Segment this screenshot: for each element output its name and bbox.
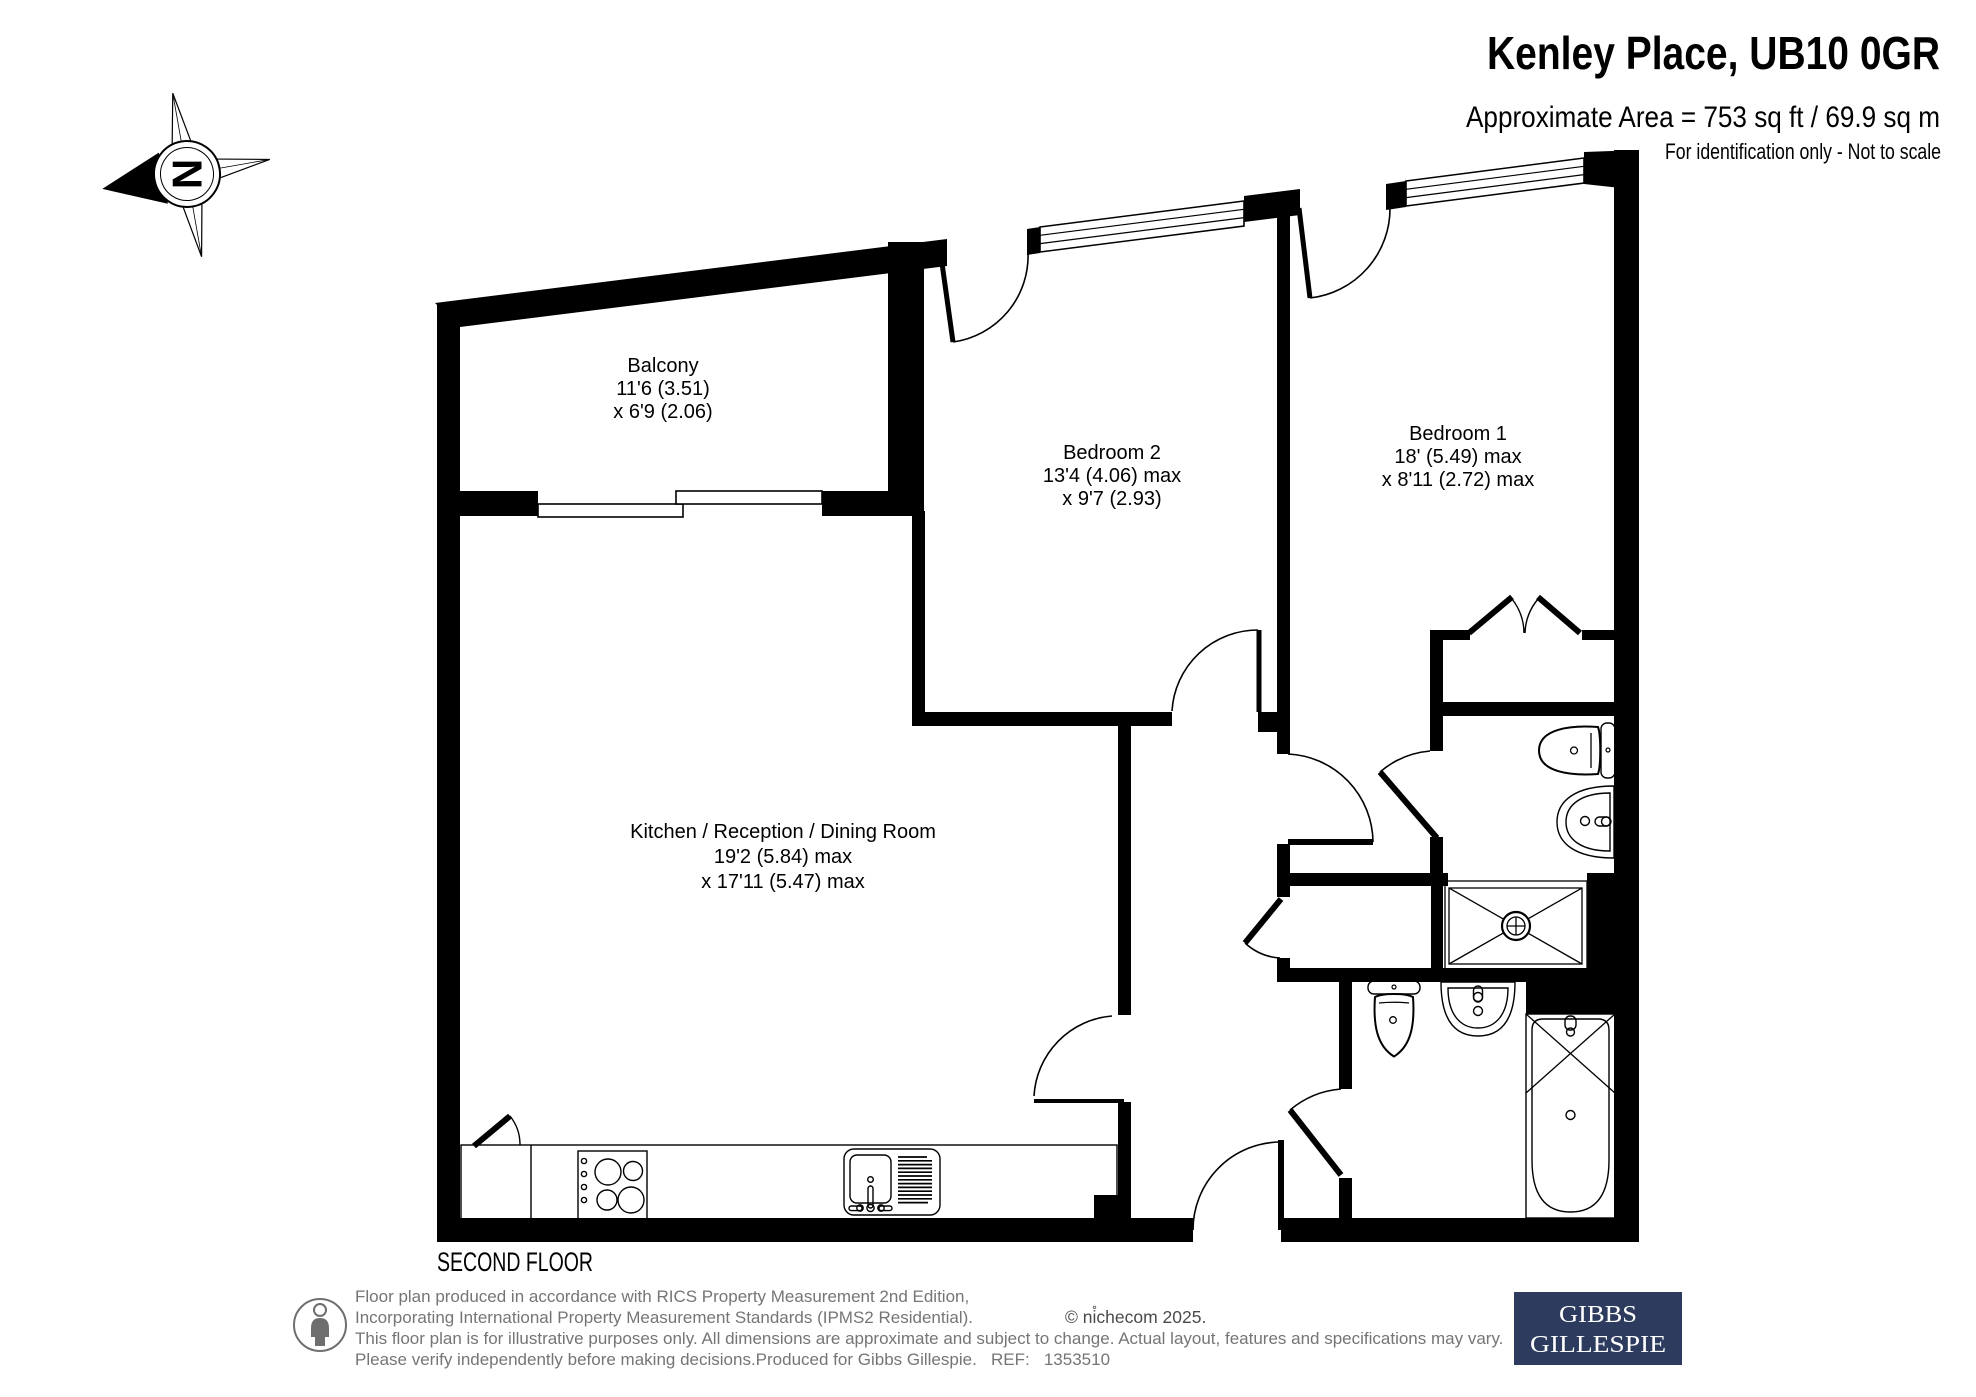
svg-text:GILLESPIE: GILLESPIE [1530,1332,1666,1358]
svg-text:For identification only - Not: For identification only - Not to scale [1665,139,1941,164]
svg-text:Balcony: Balcony [627,355,698,377]
svg-text:x 8'11 (2.72) max: x 8'11 (2.72) max [1382,469,1534,491]
svg-text:Kenley Place, UB10 0GR: Kenley Place, UB10 0GR [1487,27,1940,79]
svg-text:x 6'9 (2.06): x 6'9 (2.06) [613,401,712,423]
svg-text:x 17'11 (5.47) max: x 17'11 (5.47) max [701,871,865,893]
svg-text:© ni̊checom 2025.: © ni̊checom 2025. [1065,1305,1206,1327]
svg-text:Approximate Area = 753 sq ft /: Approximate Area = 753 sq ft / 69.9 sq m [1466,101,1940,134]
svg-text:Bedroom 1: Bedroom 1 [1409,423,1507,445]
svg-text:GIBBS: GIBBS [1559,1302,1637,1328]
svg-text:19'2 (5.84) max: 19'2 (5.84) max [714,846,852,868]
svg-text:Bedroom 2: Bedroom 2 [1063,442,1161,464]
svg-text:Kitchen / Reception / Dining R: Kitchen / Reception / Dining Room [630,821,936,843]
svg-text:This floor plan is for illustr: This floor plan is for illustrative purp… [355,1329,1503,1348]
svg-text:Floor plan produced in accorda: Floor plan produced in accordance with R… [355,1287,969,1306]
svg-text:Please verify independently be: Please verify independently before makin… [355,1350,1110,1369]
svg-text:11'6 (3.51): 11'6 (3.51) [616,378,710,400]
svg-text:13'4 (4.06) max: 13'4 (4.06) max [1043,465,1181,487]
svg-text:18' (5.49) max: 18' (5.49) max [1394,446,1521,468]
svg-text:SECOND FLOOR: SECOND FLOOR [437,1247,593,1277]
svg-text:Incorporating International Pr: Incorporating International Property Mea… [355,1308,973,1327]
svg-text:N: N [164,159,211,189]
svg-text:x 9'7 (2.93): x 9'7 (2.93) [1062,488,1161,510]
